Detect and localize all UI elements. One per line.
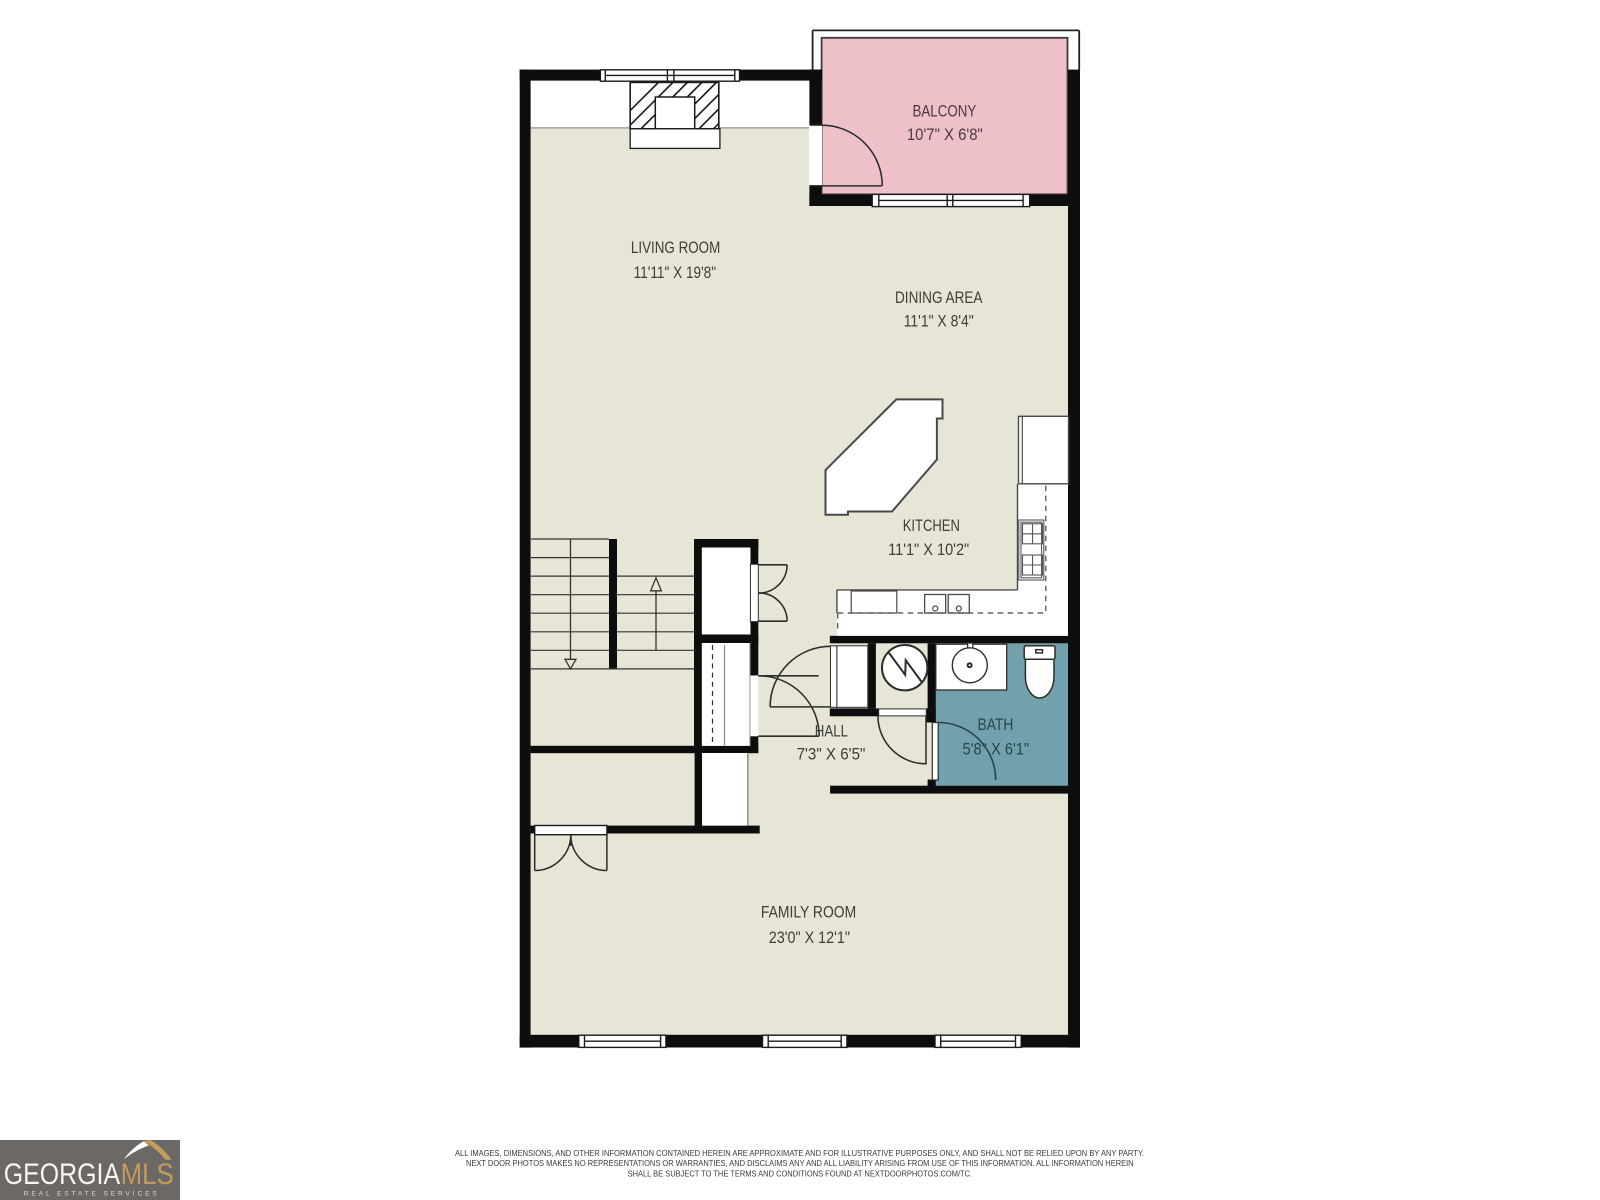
svg-text:GEORGIA: GEORGIA [4, 1158, 120, 1191]
svg-text:LIVING ROOM: LIVING ROOM [631, 238, 720, 257]
svg-text:MLS: MLS [121, 1158, 174, 1191]
svg-text:DINING AREA: DINING AREA [895, 288, 983, 307]
svg-text:FAMILY ROOM: FAMILY ROOM [761, 903, 856, 922]
svg-text:10'7" X 6'8": 10'7" X 6'8" [907, 125, 983, 144]
svg-text:NEXT DOOR PHOTOS MAKES NO REPR: NEXT DOOR PHOTOS MAKES NO REPRESENTATION… [466, 1158, 1134, 1168]
svg-text:11'11" X 19'8": 11'11" X 19'8" [634, 263, 717, 282]
svg-text:5'8" X 6'1": 5'8" X 6'1" [963, 739, 1030, 758]
svg-text:HALL: HALL [815, 721, 848, 740]
svg-text:BATH: BATH [978, 715, 1014, 734]
svg-text:11'1" X 8'4": 11'1" X 8'4" [904, 312, 974, 331]
svg-text:7'3" X 6'5": 7'3" X 6'5" [797, 745, 866, 764]
svg-text:23'0" X 12'1": 23'0" X 12'1" [769, 928, 850, 947]
svg-text:KITCHEN: KITCHEN [903, 516, 960, 535]
svg-text:ALL IMAGES, DIMENSIONS, AND OT: ALL IMAGES, DIMENSIONS, AND OTHER INFORM… [455, 1148, 1144, 1158]
svg-text:SHALL BE SUBJECT TO THE TERMS: SHALL BE SUBJECT TO THE TERMS AND CONDIT… [628, 1168, 973, 1178]
svg-text:11'1" X 10'2": 11'1" X 10'2" [888, 540, 969, 559]
svg-text:BALCONY: BALCONY [913, 102, 977, 121]
